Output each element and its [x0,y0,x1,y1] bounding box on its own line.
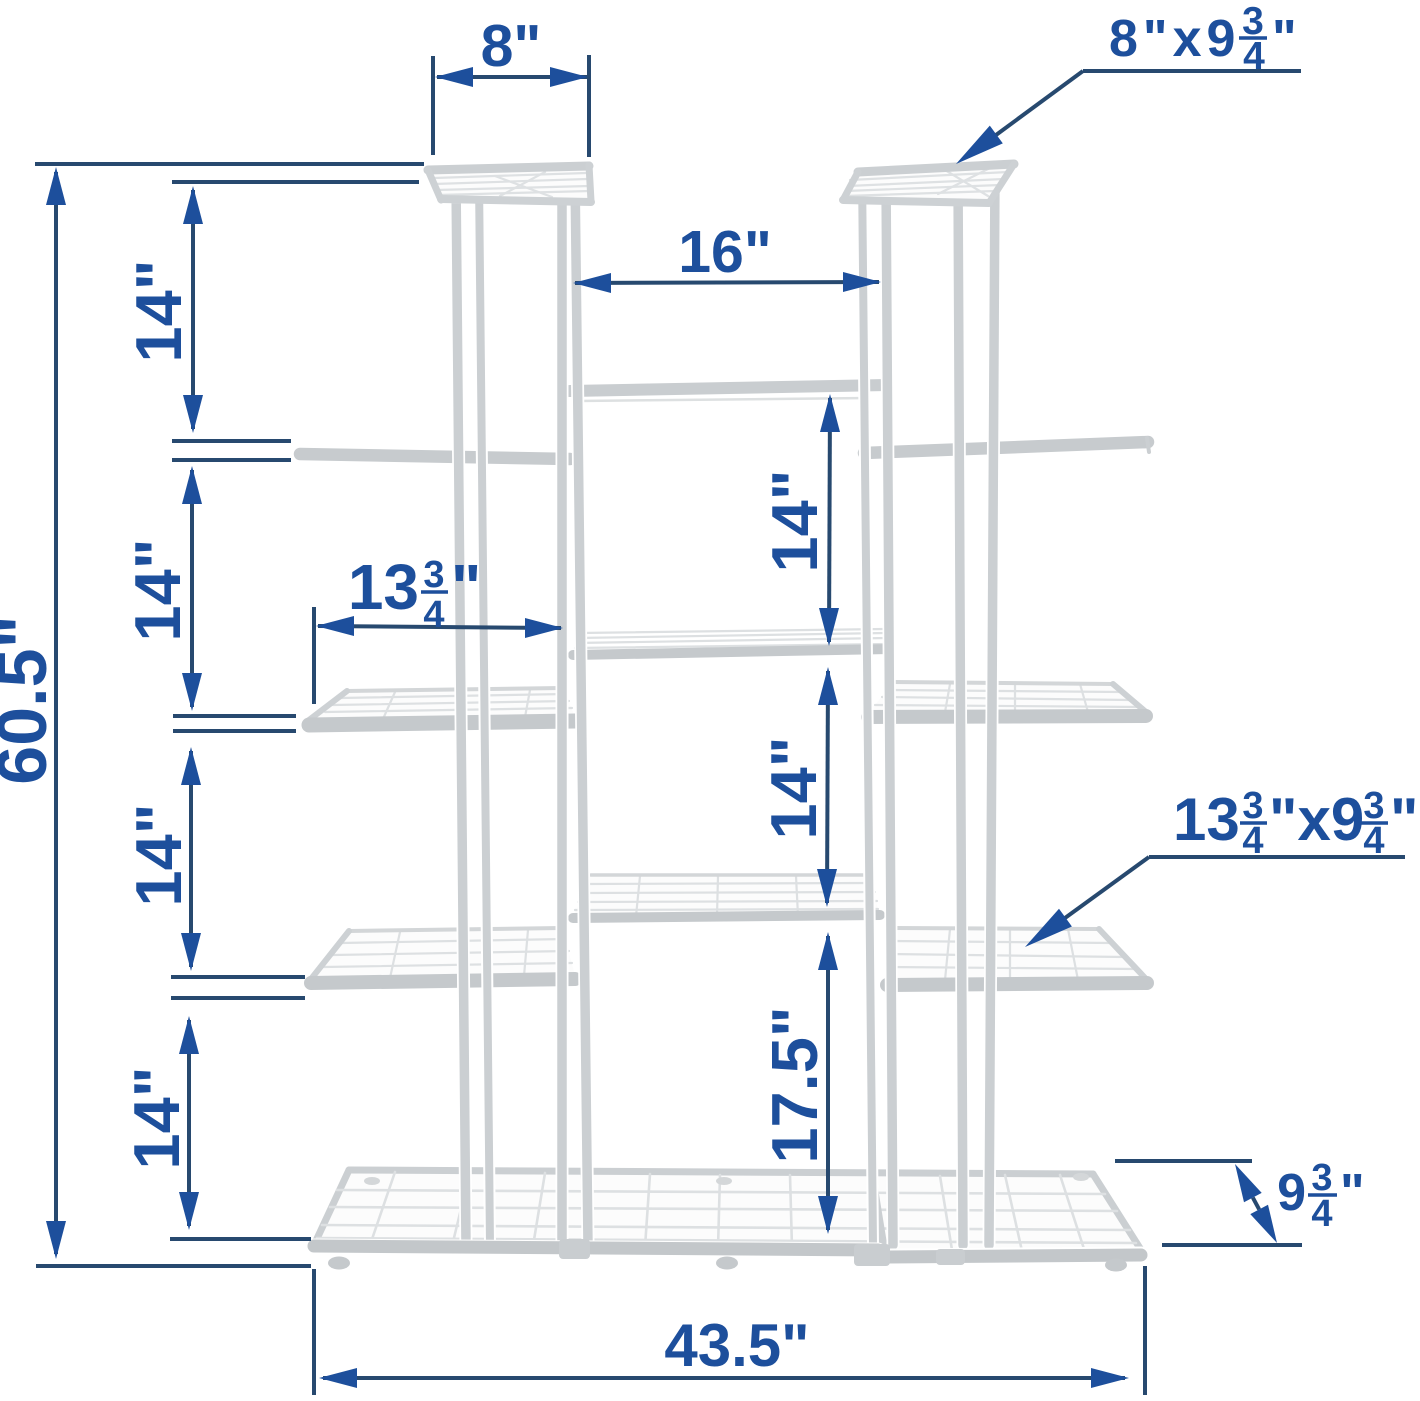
svg-text:17.5": 17.5" [758,1006,831,1163]
svg-text:14": 14" [120,1066,193,1169]
svg-text:60.5": 60.5" [0,615,61,784]
svg-text:8"x9: 8"x9 [1109,10,1240,68]
svg-text:14": 14" [122,259,195,362]
svg-text:4: 4 [423,594,444,636]
svg-text:": " [1340,1164,1365,1222]
svg-text:9: 9 [1277,1164,1306,1222]
svg-text:4: 4 [1311,1193,1332,1235]
svg-text:16": 16" [678,219,772,285]
svg-text:43.5": 43.5" [664,1312,809,1379]
svg-text:4: 4 [1242,820,1263,862]
svg-text:14": 14" [757,736,830,839]
svg-text:14": 14" [122,803,195,906]
svg-text:": " [1390,786,1418,853]
svg-text:13: 13 [348,551,419,623]
svg-text:": " [1272,10,1297,68]
svg-text:14": 14" [758,469,831,572]
svg-text:3: 3 [423,554,444,596]
svg-text:8": 8" [481,13,542,79]
svg-text:"x9: "x9 [1269,786,1364,853]
svg-text:": " [451,551,481,623]
svg-text:13: 13 [1173,786,1240,853]
svg-text:14": 14" [121,538,194,641]
svg-text:4: 4 [1243,35,1265,78]
svg-text:4: 4 [1363,820,1384,862]
